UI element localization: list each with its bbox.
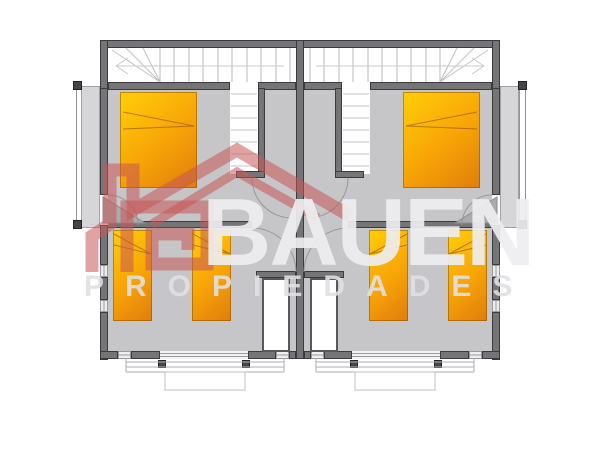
sill-lines — [160, 354, 440, 357]
stair-treads-left — [112, 48, 290, 82]
stair-treads-right — [310, 48, 488, 82]
porch-steps-left — [126, 358, 284, 390]
floor-plan: BAUEN PROPIEDADES — [0, 0, 600, 450]
porch-steps-right — [316, 358, 474, 390]
watermark-subtitle: PROPIEDADES — [84, 272, 533, 302]
watermark-brand: BAUEN — [202, 185, 533, 281]
